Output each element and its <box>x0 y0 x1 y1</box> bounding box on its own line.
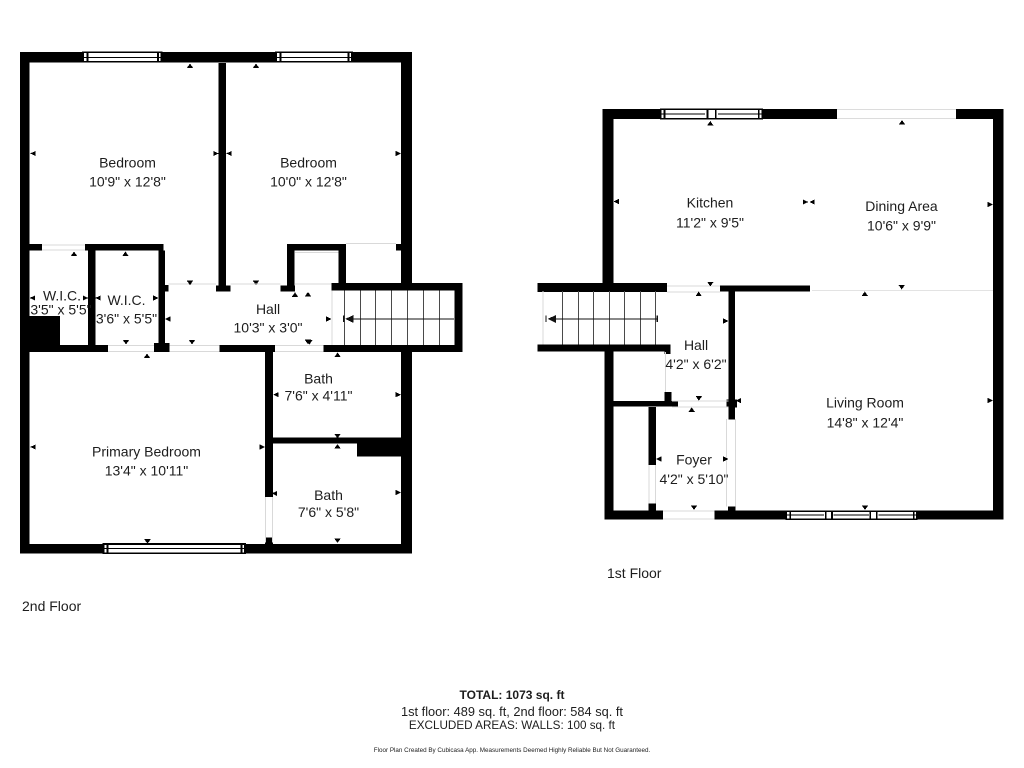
svg-text:1st Floor: 1st Floor <box>607 565 662 581</box>
svg-text:TOTAL: 1073 sq. ft: TOTAL: 1073 sq. ft <box>460 688 565 702</box>
svg-text:Living Room: Living Room <box>826 395 904 411</box>
svg-text:Dining Area: Dining Area <box>865 198 938 214</box>
svg-text:Hall: Hall <box>684 337 708 353</box>
svg-text:Bath: Bath <box>314 487 343 503</box>
svg-text:Primary Bedroom: Primary Bedroom <box>92 444 201 460</box>
svg-text:3'6" x 5'5": 3'6" x 5'5" <box>96 311 157 327</box>
svg-text:10'6" x 9'9": 10'6" x 9'9" <box>867 218 936 234</box>
svg-text:Kitchen: Kitchen <box>687 195 734 211</box>
svg-text:7'6" x 5'8": 7'6" x 5'8" <box>298 504 359 520</box>
svg-text:13'4" x 10'11": 13'4" x 10'11" <box>105 463 189 479</box>
svg-text:3'5" x 5'5": 3'5" x 5'5" <box>30 302 91 318</box>
svg-text:10'0" x 12'8": 10'0" x 12'8" <box>270 174 347 190</box>
svg-text:10'9" x 12'8": 10'9" x 12'8" <box>89 174 166 190</box>
svg-text:11'2" x 9'5": 11'2" x 9'5" <box>676 215 744 231</box>
svg-text:7'6" x 4'11": 7'6" x 4'11" <box>285 388 353 404</box>
svg-text:2nd Floor: 2nd Floor <box>22 598 81 614</box>
svg-text:10'3" x 3'0": 10'3" x 3'0" <box>234 320 303 336</box>
svg-text:14'8" x 12'4": 14'8" x 12'4" <box>827 415 904 431</box>
svg-text:Bath: Bath <box>304 371 333 387</box>
svg-text:Hall: Hall <box>256 301 280 317</box>
svg-text:Bedroom: Bedroom <box>280 155 337 171</box>
svg-text:4'2" x 6'2": 4'2" x 6'2" <box>665 356 726 372</box>
svg-text:1st floor: 489 sq. ft, 2nd flo: 1st floor: 489 sq. ft, 2nd floor: 584 sq… <box>401 704 623 719</box>
svg-text:Bedroom: Bedroom <box>99 155 156 171</box>
svg-text:EXCLUDED AREAS: WALLS: 100 sq.: EXCLUDED AREAS: WALLS: 100 sq. ft <box>409 719 616 732</box>
svg-text:Foyer: Foyer <box>676 452 712 468</box>
svg-text:W.I.C.: W.I.C. <box>107 292 145 308</box>
svg-text:4'2" x 5'10": 4'2" x 5'10" <box>660 471 729 487</box>
svg-text:Floor Plan Created By Cubicasa: Floor Plan Created By Cubicasa App. Meas… <box>374 747 651 754</box>
